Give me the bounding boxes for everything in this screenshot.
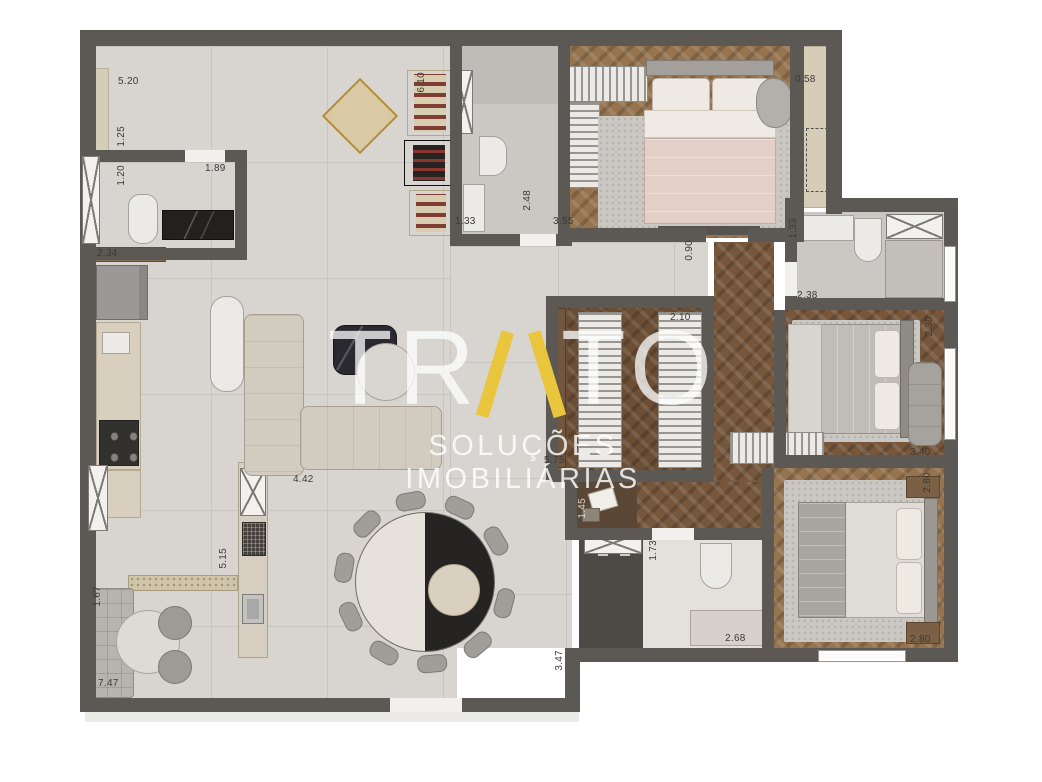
wall-closet-right	[702, 296, 714, 482]
kitchen-sink	[102, 332, 130, 354]
master-bath-toilet	[700, 543, 732, 589]
lavabo-toilet	[128, 194, 158, 244]
dim-label: 3.55	[553, 216, 574, 227]
dim-label: 1.25	[116, 126, 127, 147]
dining-table-centerpiece	[428, 564, 480, 616]
balcony-dashed-unit	[806, 128, 828, 192]
dim-label: 5.20	[118, 76, 139, 87]
left-wall-shaft-hatch	[82, 156, 100, 244]
bathroom2-shaft-hatch	[886, 214, 943, 239]
nook-chair	[158, 606, 192, 640]
bathroom2-vanity	[800, 215, 854, 241]
dim-label: 2.10	[670, 312, 691, 323]
sofa-section-horizontal	[300, 406, 442, 470]
service-counter	[128, 575, 238, 591]
dim-label: 2.80	[910, 634, 931, 645]
dim-label: 6.10	[416, 72, 427, 93]
dim-label: 4.42	[293, 474, 314, 485]
left-wall-shaft-hatch-2	[88, 465, 108, 531]
dim-label: 1.20	[116, 165, 127, 186]
dim-label: 5.15	[218, 548, 229, 569]
lavabo-marble-counter	[162, 210, 234, 240]
master-pillow	[896, 508, 922, 560]
lavabo-door-opening	[185, 150, 225, 162]
closet-wardrobe-right	[658, 312, 702, 468]
wall-closet-top	[546, 296, 706, 308]
bedroom2-bench	[908, 362, 942, 446]
dim-label: 2.68	[725, 633, 746, 644]
wine-rack-top	[407, 70, 453, 136]
dim-label: 1.33	[455, 216, 476, 227]
bathroom1-shower-zone	[462, 46, 558, 104]
wall-bottom-left	[85, 698, 579, 712]
bedroom2-sheet-fold	[788, 324, 822, 434]
coffee-table-round	[357, 343, 415, 401]
window-bedroom2	[944, 348, 956, 440]
dim-label: 1.73	[648, 540, 659, 561]
suite1-headboard	[646, 60, 774, 76]
wine-fridge	[404, 140, 454, 186]
dim-label: 2.30	[924, 316, 935, 337]
dim-label: 0.58	[795, 74, 816, 85]
wall-balcony-outer	[826, 30, 842, 214]
entry-door-opening	[390, 698, 462, 712]
dim-label: 3.47	[554, 650, 565, 671]
master-bath-shower-floor	[579, 540, 643, 650]
floor-plan: 5.20 1.25 1.20 1.89 2.34 6.10 1.33 2.48 …	[0, 0, 1042, 782]
wine-rack-bottom	[409, 190, 453, 236]
master-headboard	[924, 498, 938, 624]
dim-label: 3.40	[910, 447, 931, 458]
dim-label: 5.75	[544, 455, 565, 466]
wall-top	[85, 30, 832, 46]
dim-label: 2.38	[797, 290, 818, 301]
chaise-lounge	[210, 296, 244, 392]
dim-label: 1.33	[788, 218, 799, 239]
window-bath2	[944, 246, 956, 302]
bath1-door-opening	[520, 234, 556, 246]
bathroom2-toilet	[854, 218, 882, 262]
masterbath-door-opening	[652, 528, 694, 540]
cooktop	[99, 420, 139, 466]
dim-label: 1.45	[577, 498, 588, 519]
sofa-section-vertical	[244, 314, 304, 476]
bottom-ledge	[85, 712, 579, 722]
suite1-sheet-fold	[644, 110, 776, 138]
master-bed-quilt	[798, 502, 846, 618]
bathroom1-toilet	[479, 136, 507, 176]
suite1-armchair	[756, 78, 794, 128]
refrigerator	[96, 265, 148, 320]
dim-label: 2.48	[522, 190, 533, 211]
dining-chair	[416, 653, 447, 674]
bedroom2-pillow	[874, 330, 900, 378]
service-sink	[242, 594, 264, 624]
suite1-closet-left	[566, 102, 600, 188]
bath2-door-opening	[785, 262, 797, 296]
window-master	[818, 650, 906, 662]
bedroom2-pillow	[874, 382, 900, 430]
wall-master-left	[762, 468, 774, 660]
nook-chair	[158, 650, 192, 684]
wall-left	[80, 30, 96, 712]
dim-label: 2.34	[97, 248, 118, 259]
master-pillow	[896, 562, 922, 614]
wall-desknook-left	[565, 470, 577, 540]
dim-label: 7.47	[98, 678, 119, 689]
suite1-closet-top	[566, 66, 648, 102]
grill	[242, 522, 266, 556]
dim-label: 0.90	[684, 240, 695, 261]
wall-bedroom2-left	[774, 310, 786, 468]
suite1-bed-blanket	[644, 138, 776, 224]
dim-label: 1.89	[205, 163, 226, 174]
dim-label: 1.67	[92, 586, 103, 607]
wall-lavabo-right	[235, 150, 247, 260]
dim-label: 2.80	[922, 472, 933, 493]
closet-wardrobe-left	[578, 312, 622, 468]
bathroom2-shower	[885, 240, 943, 298]
wall-rightwing-top	[826, 198, 958, 212]
suite1-pillow	[652, 78, 710, 114]
